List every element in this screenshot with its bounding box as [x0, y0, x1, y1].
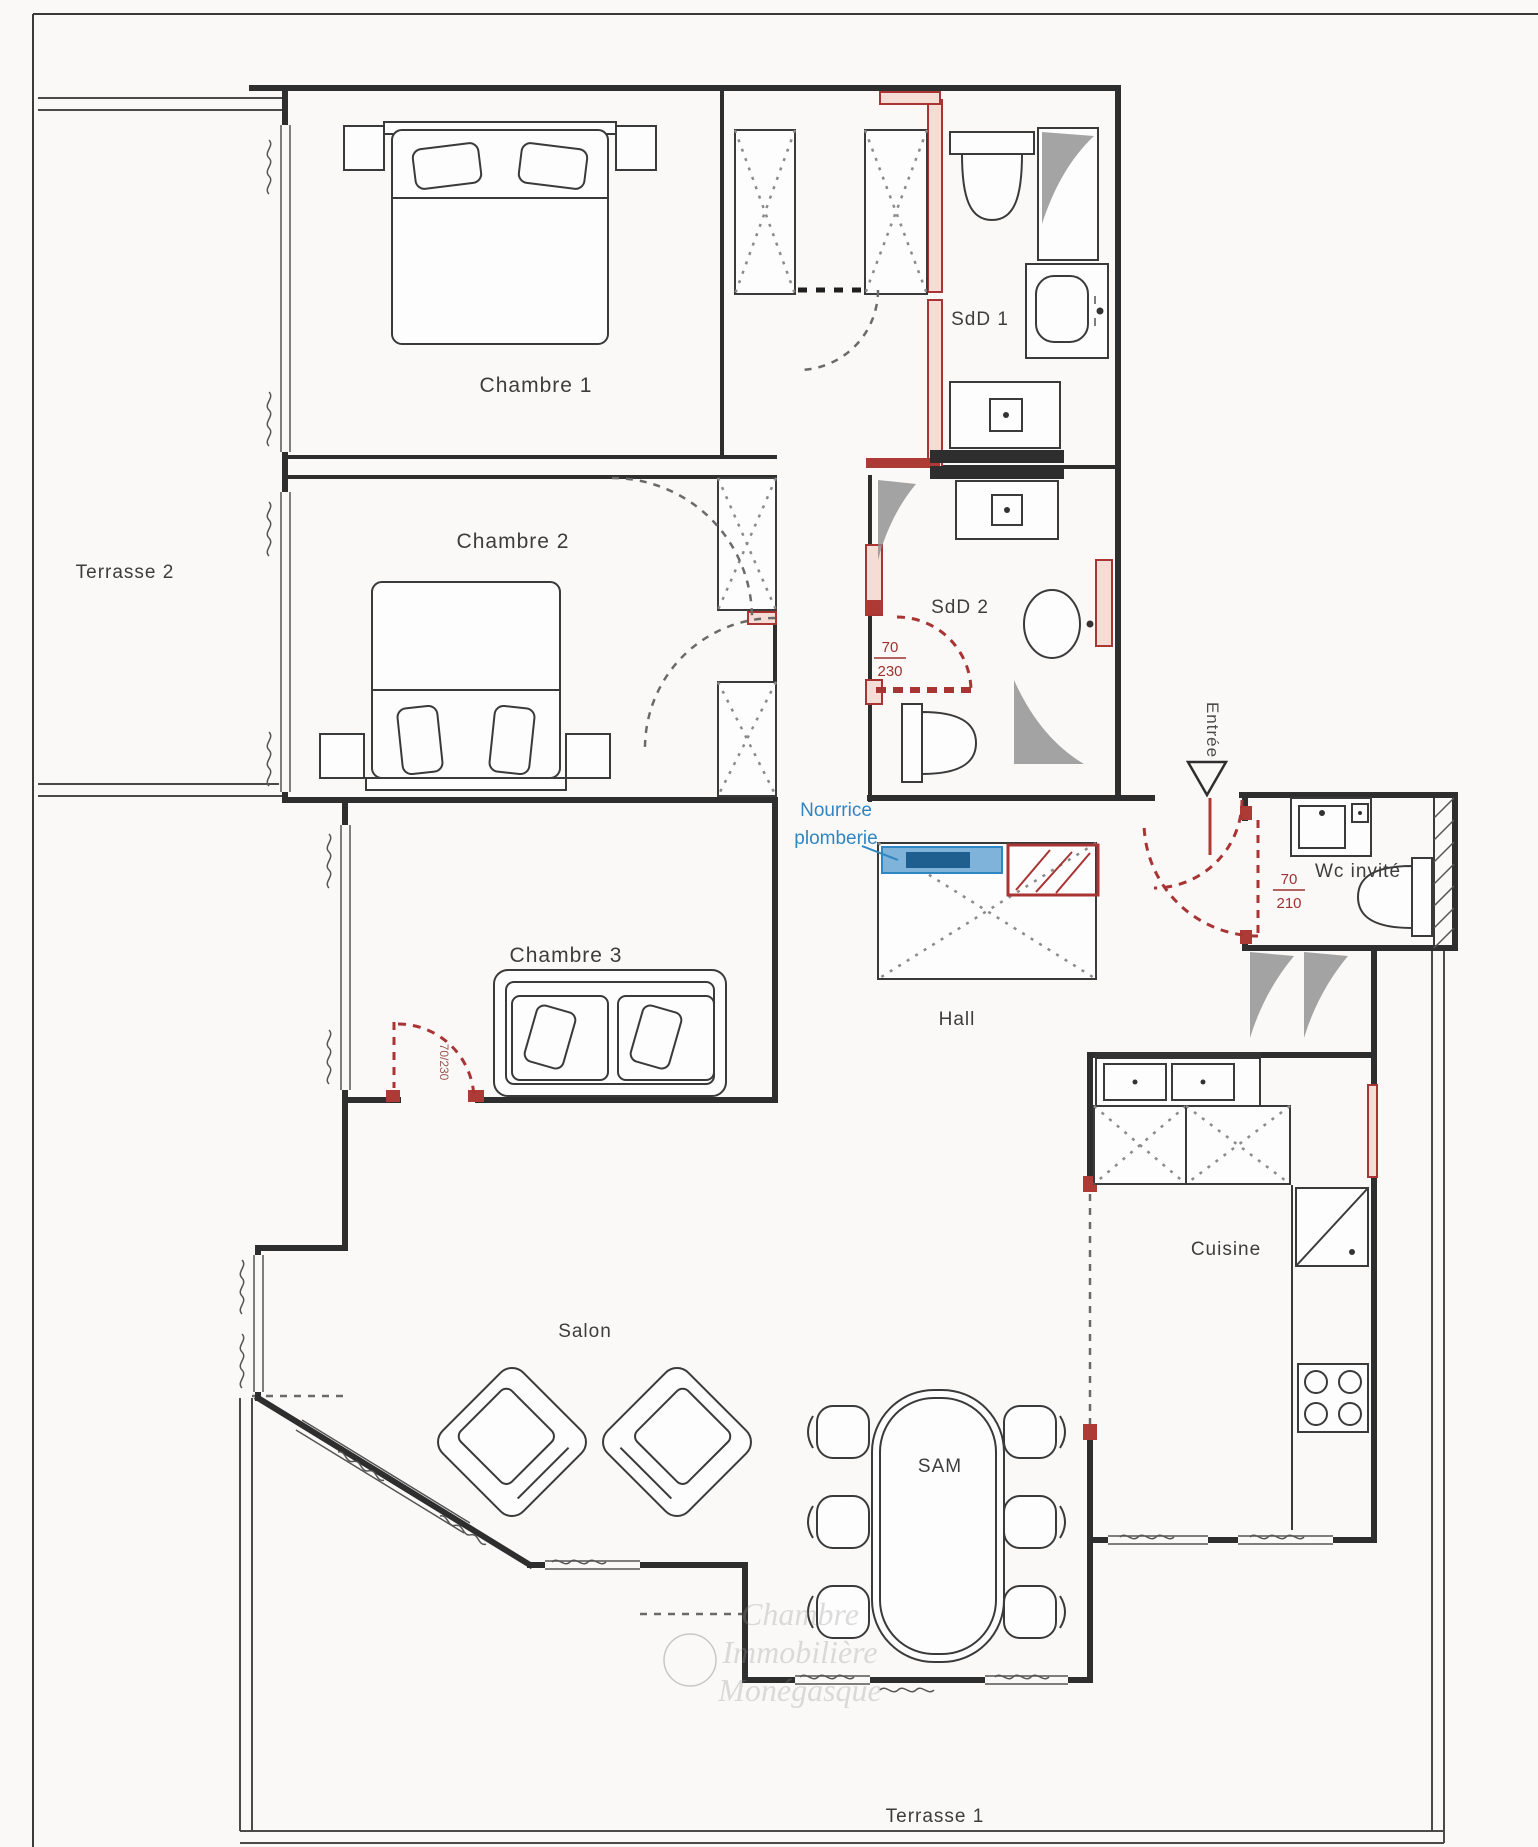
label-sdd1: SdD 1: [951, 309, 1009, 330]
window-squiggle-icon: [267, 140, 270, 194]
bed-double-chambre1: [344, 122, 656, 344]
dining-table-icon: [872, 1390, 1004, 1662]
floor-plan-drawing: Chambre Immobilière Monégasque Chambre 1…: [0, 0, 1538, 1847]
label-terrasse2: Terrasse 2: [76, 562, 175, 583]
label-sam: SAM: [918, 1456, 962, 1477]
ch3-door-size: 70/230: [437, 1044, 451, 1081]
sofa-chambre3: [494, 970, 726, 1096]
kitchen-sink: [1096, 1052, 1260, 1108]
label-chambre3: Chambre 3: [510, 944, 623, 967]
sdd2-door-width: 70: [882, 639, 899, 656]
toilet-sdd2: [902, 704, 976, 782]
plumbing-note-line1: Nourrice: [800, 800, 872, 821]
label-entree: Entrée: [1203, 702, 1222, 758]
bed-double-chambre2: [320, 582, 610, 790]
washing-machine-icon: [930, 382, 1064, 539]
floor-plan-page: Chambre Immobilière Monégasque Chambre 1…: [0, 0, 1538, 1847]
washbasin-sdd2: [1024, 590, 1094, 658]
kitchen-appliance: [1296, 1188, 1368, 1266]
wc-door-width: 70: [1281, 871, 1298, 888]
sdd2-door-height: 230: [877, 663, 902, 680]
technical-closet: [862, 843, 1098, 979]
watermark-line2: Immobilière: [721, 1634, 877, 1670]
entry-marker: [1188, 762, 1226, 855]
label-hall: Hall: [939, 1009, 976, 1030]
washbasin-sdd1: [1026, 264, 1108, 358]
label-chambre1: Chambre 1: [480, 374, 593, 397]
cabinet-sdd1: [1038, 128, 1098, 260]
windows: [240, 125, 1333, 1692]
sink-wc: [1291, 798, 1371, 856]
terrace-rails: [38, 98, 1444, 1843]
label-sdd2: SdD 2: [931, 597, 989, 618]
plumbing-note: Nourrice plomberie: [794, 800, 877, 849]
armchairs-salon: [431, 1361, 757, 1522]
entry-arrow-icon: [1188, 762, 1226, 795]
watermark-line1: Chambre: [741, 1596, 859, 1632]
kitchen-wardrobes: [1094, 1106, 1290, 1184]
label-salon: Salon: [558, 1321, 612, 1342]
watermark-line3: Monégasque: [717, 1672, 882, 1708]
label-terrasse1: Terrasse 1: [886, 1806, 985, 1827]
label-cuisine: Cuisine: [1191, 1239, 1261, 1260]
armchair-icon: [431, 1361, 592, 1522]
wardrobe-chambre1: [735, 130, 927, 294]
chair-icon: [808, 1406, 869, 1458]
hatched-wall: [1434, 798, 1454, 948]
plumbing-note-line2: plomberie: [794, 828, 877, 849]
label-chambre2: Chambre 2: [457, 530, 570, 553]
toilet-sdd1: [950, 132, 1034, 220]
shower-wedge-icon: [1014, 680, 1084, 764]
label-wc-invite: Wc invité: [1315, 861, 1401, 882]
pillow-icon: [412, 142, 482, 190]
cooktop-icon: [1298, 1364, 1368, 1432]
wc-door-height: 210: [1276, 895, 1301, 912]
wardrobe-chambre2: [718, 478, 776, 796]
